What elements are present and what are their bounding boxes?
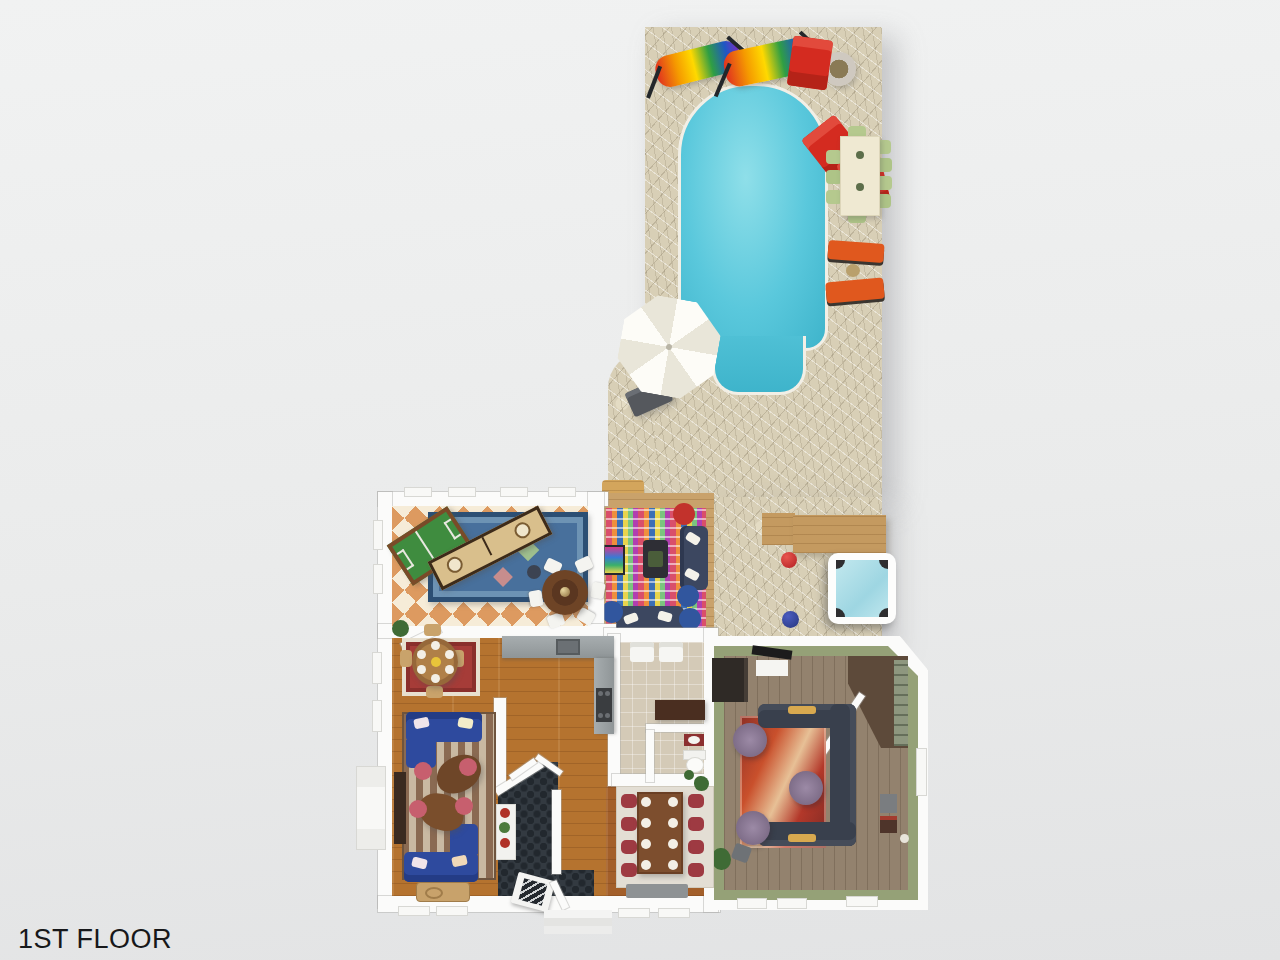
hall-console <box>655 700 705 720</box>
sun-lounger-1 <box>827 240 884 263</box>
window <box>373 520 383 550</box>
hot-tub <box>828 553 896 624</box>
powder-vanity <box>684 734 704 746</box>
book-stand <box>880 816 897 833</box>
place-setting <box>417 650 426 659</box>
floor-plan-canvas: 1ST FLOOR <box>0 0 1280 960</box>
maroon-chair <box>688 840 704 854</box>
rose-pouf <box>459 758 477 776</box>
fire-table <box>643 540 668 578</box>
centerpiece <box>431 657 441 667</box>
sofa-throw <box>788 834 816 842</box>
place-setting <box>445 665 454 674</box>
wall-powder-left <box>646 730 654 782</box>
window <box>373 564 383 594</box>
blue-pouf <box>679 608 701 630</box>
kitchen-sink <box>556 639 580 655</box>
purple-ottoman <box>733 723 767 757</box>
place-setting <box>417 665 426 674</box>
hot-tub-water <box>836 560 888 617</box>
corner-shelf <box>894 660 908 746</box>
sideboard <box>626 884 688 898</box>
window <box>436 906 468 916</box>
blue-ball <box>782 611 799 628</box>
wall-hall-top <box>604 628 716 642</box>
dining-plant <box>694 776 709 791</box>
purple-ottoman <box>736 811 770 845</box>
shuffleboard-target <box>444 554 466 576</box>
maroon-chair <box>621 840 637 854</box>
bench-rope <box>425 887 443 899</box>
hot-tub-deck <box>762 513 795 545</box>
maroon-chair <box>621 863 637 877</box>
blue-pouf <box>601 601 623 623</box>
place-setting <box>668 818 678 828</box>
hot-tub-deck-main <box>793 515 886 553</box>
hall-plant <box>684 770 694 780</box>
maroon-chair <box>621 817 637 831</box>
family-window <box>846 896 878 907</box>
place-setting <box>445 650 454 659</box>
foosball-midline <box>415 531 434 559</box>
bay-window <box>356 766 386 850</box>
floor-plan-label: 1ST FLOOR <box>18 924 172 955</box>
window <box>500 487 528 497</box>
wall-foyer-right <box>552 790 561 874</box>
rose-pouf <box>409 800 427 818</box>
maroon-chair <box>688 863 704 877</box>
place-setting <box>431 641 440 650</box>
poker-chair <box>590 581 606 599</box>
window <box>548 487 576 497</box>
range <box>596 688 612 722</box>
nook-chair <box>400 650 412 667</box>
place-setting <box>641 839 651 849</box>
hall-armchair <box>659 642 683 662</box>
deck-sofa-right <box>680 526 708 590</box>
lounger-side-table <box>846 264 860 277</box>
place-setting <box>668 860 678 870</box>
nook-chair <box>426 686 443 698</box>
deck-pillow <box>685 531 702 546</box>
window <box>372 700 382 732</box>
table-plant <box>856 151 864 159</box>
shuffleboard-target <box>512 520 534 542</box>
poker-table <box>542 570 588 615</box>
adirondack-chair-1 <box>787 35 834 90</box>
side-cabinet <box>880 794 897 813</box>
purple-ottoman <box>789 771 823 805</box>
shuffleboard-line <box>481 537 492 556</box>
window <box>658 908 690 918</box>
place-setting <box>641 797 651 807</box>
poker-chips <box>560 587 570 597</box>
window <box>448 487 476 497</box>
maroon-chair <box>621 794 637 808</box>
window <box>404 487 432 497</box>
burner <box>605 691 610 696</box>
rose-pouf <box>455 797 473 815</box>
shelf-plant <box>499 822 510 833</box>
family-window-right <box>916 748 927 796</box>
stair-treads <box>519 878 548 905</box>
family-plant <box>712 848 731 870</box>
wall-powder-top <box>646 724 712 732</box>
woven-bench <box>416 882 470 902</box>
place-setting <box>668 797 678 807</box>
nook-table <box>412 638 458 686</box>
window <box>398 906 430 916</box>
rug-medallion <box>493 567 513 587</box>
fire-table-top <box>648 551 663 567</box>
place-setting <box>641 818 651 828</box>
pool-tail <box>712 336 806 395</box>
family-window <box>777 898 807 909</box>
burner <box>598 691 603 696</box>
umbrella-pole <box>666 344 673 351</box>
table-plant <box>856 183 864 191</box>
kitchen-counter-right <box>594 658 614 734</box>
maroon-chair <box>688 817 704 831</box>
place-setting <box>668 839 678 849</box>
red-ball <box>781 552 797 568</box>
nook-plant <box>392 620 409 637</box>
tv-mat <box>756 660 788 676</box>
nook-chair <box>424 624 441 636</box>
wall-console <box>394 772 406 844</box>
blue-pouf <box>677 585 699 607</box>
place-setting <box>641 860 651 870</box>
front-steps <box>544 910 612 934</box>
family-window <box>737 898 767 909</box>
outdoor-dining-table <box>840 136 880 216</box>
floor-lamp <box>900 834 909 843</box>
window <box>618 908 650 918</box>
red-pot <box>500 838 510 848</box>
hall-armchair <box>630 642 654 662</box>
kitchen-counter-top <box>502 636 614 658</box>
deck-pillow <box>623 612 639 625</box>
window <box>372 652 382 684</box>
media-console <box>712 658 748 702</box>
art-panel <box>605 547 623 573</box>
deck-pillow <box>684 567 701 582</box>
sofa-throw <box>788 706 816 714</box>
burner <box>598 713 603 718</box>
deck-pillow <box>657 610 673 622</box>
place-setting <box>431 674 440 683</box>
rose-pouf <box>414 762 432 780</box>
red-pouf <box>673 503 695 525</box>
burner <box>605 713 610 718</box>
maroon-chair <box>688 794 704 808</box>
red-pot <box>500 808 510 818</box>
dark-side-chair <box>527 565 541 579</box>
vanity-sink <box>688 736 700 744</box>
